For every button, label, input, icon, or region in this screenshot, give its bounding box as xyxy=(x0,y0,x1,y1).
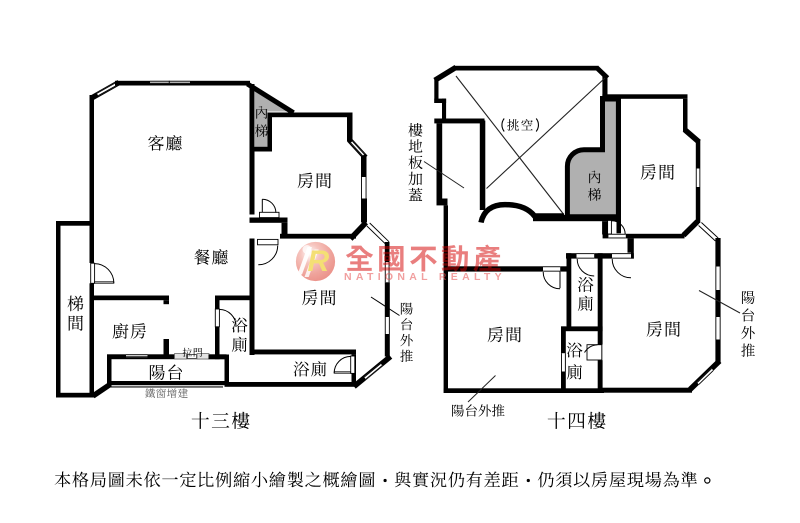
svg-text:NATIONAL REALTY: NATIONAL REALTY xyxy=(344,271,506,283)
svg-text:R: R xyxy=(308,245,330,278)
